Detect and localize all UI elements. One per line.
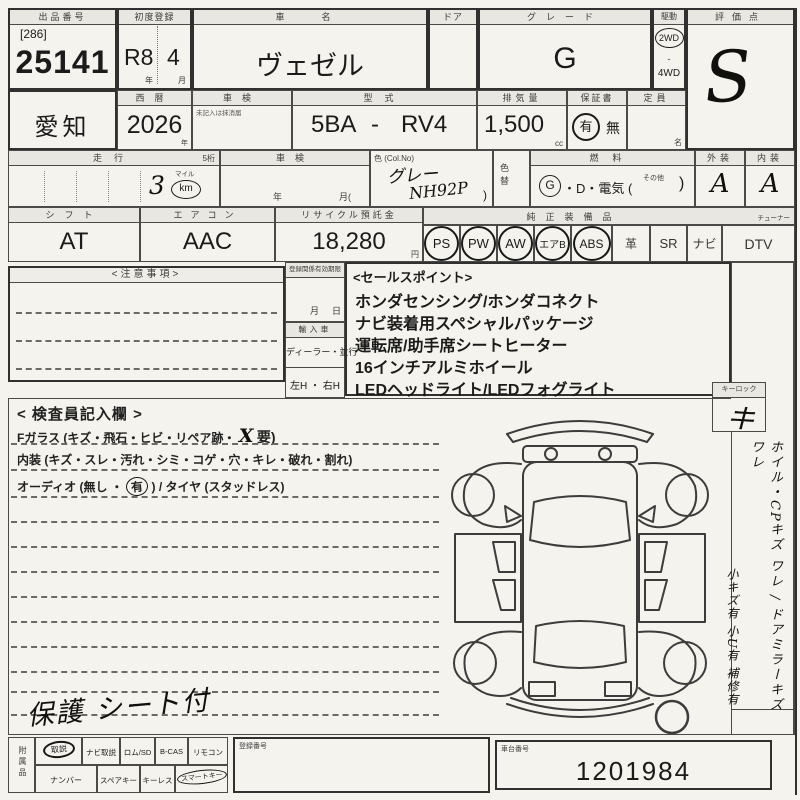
sales-points-box: <セールスポイント> ホンダセンシング/ホンダコネクト ナビ装着用スペシャルパッ… — [345, 262, 731, 396]
capacity-label: 定員 — [628, 91, 685, 106]
accessory-keyless: キーレス — [140, 765, 175, 793]
equipment-ps: PS — [423, 225, 460, 262]
equipment-abs: ABS — [571, 225, 612, 262]
car-name-value: ヴェゼル — [194, 44, 426, 83]
notes-title: <注意事項> — [10, 268, 283, 283]
mileage-digits-note: 5桁 — [203, 153, 215, 164]
exterior-label: 外装 — [696, 151, 744, 166]
import-handle: 左H ・ 右H — [286, 377, 344, 392]
accessory-navi-torisetsu: ナビ取説 — [82, 737, 120, 765]
sales-point-5: LEDヘッドライト/LEDフォグライト — [355, 376, 615, 400]
audio-pre: オーディオ (無し ・ — [17, 480, 123, 494]
sales-point-2: ナビ装着用スペシャルパッケージ — [355, 310, 594, 334]
prefecture-value: 愛知 — [10, 107, 115, 142]
aircon-value: AAC — [141, 228, 274, 256]
model-code-cell: 型式 5BA - RV4 — [292, 90, 477, 150]
displacement-unit: cc — [555, 139, 563, 148]
equipment-pw-label: PW — [468, 236, 489, 251]
prefecture-cell: 愛知 — [8, 90, 117, 150]
drive-2wd: 2WD — [655, 28, 684, 48]
month-suffix: 月 — [178, 75, 186, 86]
shaken-year-suffix: 年 — [273, 190, 282, 203]
equipment-sr: SR — [650, 225, 687, 262]
registration-number-box: 登録番号 — [233, 737, 490, 793]
notes-line — [16, 312, 277, 314]
equipment-header: 純正装備品 チューナー — [423, 207, 795, 225]
score-label: 評価点 — [688, 10, 793, 25]
equipment-sr-label: SR — [659, 236, 677, 251]
first-registration-cell: 初度登録 R8 4 年 月 — [117, 8, 192, 90]
equipment-airbag-label: エアB — [539, 236, 566, 251]
recycle-deposit-label: リサイクル預託金 — [276, 208, 422, 223]
car-name-label: 車 名 — [194, 10, 426, 25]
sales-point-1: ホンダセンシング/ホンダコネクト — [355, 288, 599, 312]
mileage-label: 走行 — [9, 151, 219, 166]
accessories-label: 附属品 — [17, 746, 28, 779]
notes-box: <注意事項> — [8, 266, 285, 382]
fuel-other: その他 — [643, 173, 664, 183]
lot-label: 出品番号 — [10, 10, 115, 25]
accessory-spare-key: スペアキー — [97, 765, 140, 793]
ruled-line — [11, 621, 439, 623]
model-code-label: 型式 — [293, 91, 476, 106]
drive-2wd-selected: 2WD — [654, 28, 684, 48]
capacity-unit: 名 — [674, 137, 682, 148]
shift-value: AT — [9, 228, 139, 256]
inspector-title: < 検査員記入欄 > — [17, 403, 143, 424]
ruled-line — [11, 521, 439, 523]
divider — [286, 367, 344, 368]
accessory-spare-key-label: スペアキー — [98, 775, 139, 786]
shift-cell: シフト AT — [8, 207, 140, 262]
color-cell: 色 (Col.No) グレー NH92P ) — [370, 150, 493, 207]
equipment-airbag: エアB — [534, 225, 571, 262]
chassis-number-box: 車台番号 1201984 — [495, 740, 772, 790]
accessory-smart-key-label: スマートキー — [176, 767, 227, 786]
shaken-upper-note: 未記入は抹消届 — [196, 107, 242, 117]
color-change-cell: 色替 — [493, 150, 530, 207]
validity-month-suffix: 月 — [310, 304, 319, 317]
import-car-box: 輸入車 ディーラー・並行 左H ・ 右H — [285, 322, 345, 398]
side-note-wheel: ホイル・CPキズ ワレ / ドアミラーキズ ワレ — [746, 440, 784, 716]
accessories-label-cell: 附属品 — [8, 737, 35, 793]
warranty-no: 無 — [606, 118, 620, 138]
first-registration-month: 4 — [167, 44, 180, 71]
audio-circled: 有 — [125, 476, 149, 497]
ruled-line — [11, 571, 439, 573]
ruled-line — [11, 443, 439, 445]
accessory-bcas: B-CAS — [155, 737, 188, 765]
mileage-km: km — [171, 180, 201, 199]
equipment-dtv-label: DTV — [745, 236, 773, 252]
drive-dash: - — [654, 54, 684, 64]
fuel-cell: 燃料 G ・D・電気 ( その他 ) — [530, 150, 695, 207]
door-label: ドア — [430, 10, 476, 25]
ruled-line — [11, 496, 439, 498]
equipment-leather: 革 — [612, 225, 650, 262]
divider — [157, 26, 158, 84]
vehicle-diagram — [435, 400, 725, 735]
recycle-deposit-unit: 円 — [411, 249, 419, 260]
mileage-value: 3 — [149, 171, 165, 200]
fuel-rest: ・D・電気 ( — [563, 178, 632, 197]
equipment-dtv: DTV — [722, 225, 795, 262]
auction-sheet: 出品番号 [286] 25141 初度登録 R8 4 年 月 車 名 ヴェゼル … — [0, 0, 800, 800]
import-dealer-parallel: ディーラー・並行 — [286, 345, 344, 358]
digit-guide — [44, 171, 45, 202]
equipment-abs-label: ABS — [579, 237, 603, 251]
notes-line — [16, 340, 277, 342]
drive-cell: 駆動 2WD - 4WD — [652, 8, 686, 90]
warranty-yes-selected: 有 — [572, 113, 600, 141]
model-code-left: 5BA — [311, 111, 356, 139]
accessory-number: ナンバー — [35, 765, 97, 793]
door-cell: ドア — [428, 8, 478, 90]
shaken-lower-cell: 車検 年 月( — [220, 150, 370, 207]
accessory-smart-key: スマートキー — [175, 765, 228, 793]
equipment-tuner-note: チューナー — [758, 212, 791, 222]
score-cell: 評価点 S — [686, 8, 795, 150]
sheet-right-edge — [795, 8, 797, 795]
fuel-label: 燃料 — [531, 151, 694, 166]
exterior-value: A — [696, 169, 744, 199]
mileage-km-selected: km — [171, 178, 201, 199]
accessory-rom-sd: ロム/SD — [120, 737, 155, 765]
sales-points-title: <セールスポイント> — [353, 267, 472, 286]
warranty-label: 保証書 — [568, 91, 626, 106]
interior-value: A — [746, 169, 794, 199]
chassis-number-label: 車台番号 — [501, 744, 529, 754]
car-name-cell: 車 名 ヴェゼル — [192, 8, 428, 90]
model-code-dash: - — [371, 111, 379, 139]
audio-line: オーディオ (無し ・ 有 ) / タイヤ (スタッドレス) — [17, 477, 285, 496]
grade-cell: グレード G — [478, 8, 652, 90]
year-western-label: 西暦 — [118, 91, 191, 106]
fuel-g: G — [539, 175, 561, 197]
year-western-value: 2026 — [118, 111, 191, 140]
aircon-label: エアコン — [141, 208, 274, 223]
shift-label: シフト — [9, 208, 139, 223]
shaken-upper-cell: 車検 未記入は抹消届 — [192, 90, 292, 150]
equipment-aw: AW — [497, 225, 534, 262]
exterior-cell: 外装 A — [695, 150, 745, 207]
accessory-rom-sd-label: ロム/SD — [121, 747, 154, 758]
drive-label: 駆動 — [654, 10, 684, 25]
recycle-deposit-cell: リサイクル預託金 18,280 円 — [275, 207, 423, 262]
capacity-cell: 定員 名 — [627, 90, 686, 150]
lot-number: 25141 — [10, 44, 115, 81]
year-western-suffix: 年 — [181, 138, 188, 148]
accessory-navi-torisetsu-label: ナビ取説 — [83, 747, 119, 758]
ruled-line — [11, 546, 439, 548]
digit-guide — [76, 171, 77, 202]
lot-cell: 出品番号 [286] 25141 — [8, 8, 117, 90]
shaken-month-open: 月( — [339, 190, 351, 203]
drive-4wd: 4WD — [654, 68, 684, 79]
equipment-navi-label: ナビ — [692, 235, 716, 252]
mileage-cell: 走行 5桁 3 マイル km — [8, 150, 220, 207]
ruled-line — [11, 671, 439, 673]
sales-point-3: 運転席/助手席シートヒーター — [355, 332, 567, 356]
sales-point-4: 16インチアルミホイール — [355, 354, 533, 378]
recycle-deposit-value: 18,280 — [276, 228, 422, 256]
displacement-value: 1,500 — [484, 111, 544, 139]
year-suffix: 年 — [145, 75, 153, 86]
accessory-torisetsu: 取説 — [35, 737, 82, 765]
ruled-line — [11, 469, 439, 471]
grade-value: G — [480, 42, 650, 76]
interior-label: 内装 — [746, 151, 794, 166]
year-western-cell: 西暦 2026 年 — [117, 90, 192, 150]
accessory-keyless-label: キーレス — [141, 775, 174, 786]
warranty-yes: 有 — [572, 113, 600, 141]
ruled-line — [11, 646, 439, 648]
shaken-lower-label: 車検 — [221, 151, 369, 166]
lot-bracket: [286] — [20, 27, 47, 41]
interior-cell: 内装 A — [745, 150, 795, 207]
equipment-leather-label: 革 — [625, 235, 637, 252]
chassis-number-value: 1201984 — [497, 756, 770, 787]
color-paren: ) — [483, 188, 487, 202]
displacement-cell: 排気量 1,500 cc — [477, 90, 567, 150]
equipment-ps-label: PS — [433, 236, 450, 251]
first-registration-label: 初度登録 — [119, 10, 190, 25]
equipment-navi: ナビ — [687, 225, 722, 262]
notes-line — [16, 368, 277, 370]
displacement-label: 排気量 — [478, 91, 566, 106]
accessory-remocon: リモコン — [188, 737, 228, 765]
validity-day-suffix: 日 — [332, 304, 341, 317]
interior-condition-line: 内装 (キズ・スレ・汚れ・シミ・コゲ・穴・キレ・破れ・割れ) — [17, 451, 352, 468]
equipment-pw: PW — [460, 225, 497, 262]
grade-label: グレード — [480, 10, 650, 25]
digit-guide — [140, 171, 141, 202]
fuel-g-selected: G — [539, 175, 561, 197]
equipment-aw-label: AW — [505, 236, 525, 251]
mileage-mile-label: マイル — [175, 168, 195, 178]
model-code-right: RV4 — [401, 111, 447, 139]
aircon-cell: エアコン AAC — [140, 207, 275, 262]
accessory-bcas-label: B-CAS — [156, 747, 187, 756]
first-registration-year: R8 — [124, 44, 153, 71]
ruled-line — [11, 596, 439, 598]
registration-validity-box: 登録関係有効期限 月 日 — [285, 262, 345, 322]
color-change-label: 色替 — [498, 163, 511, 189]
accessory-torisetsu-label: 取説 — [42, 739, 76, 759]
warranty-cell: 保証書 有 無 — [567, 90, 627, 150]
digit-guide — [108, 171, 109, 202]
shaken-upper-label: 車検 — [193, 91, 291, 106]
registration-number-label: 登録番号 — [239, 741, 267, 751]
audio-post: ) / タイヤ (スタッドレス) — [152, 480, 285, 494]
fuel-close: ) — [679, 175, 684, 193]
import-car-label: 輸入車 — [286, 323, 344, 338]
equipment-label: 純正装備品 — [424, 210, 724, 223]
registration-validity-label: 登録関係有効期限 — [286, 263, 344, 278]
accessory-remocon-label: リモコン — [189, 747, 227, 758]
accessory-number-label: ナンバー — [36, 775, 96, 786]
score-value: S — [701, 34, 755, 119]
